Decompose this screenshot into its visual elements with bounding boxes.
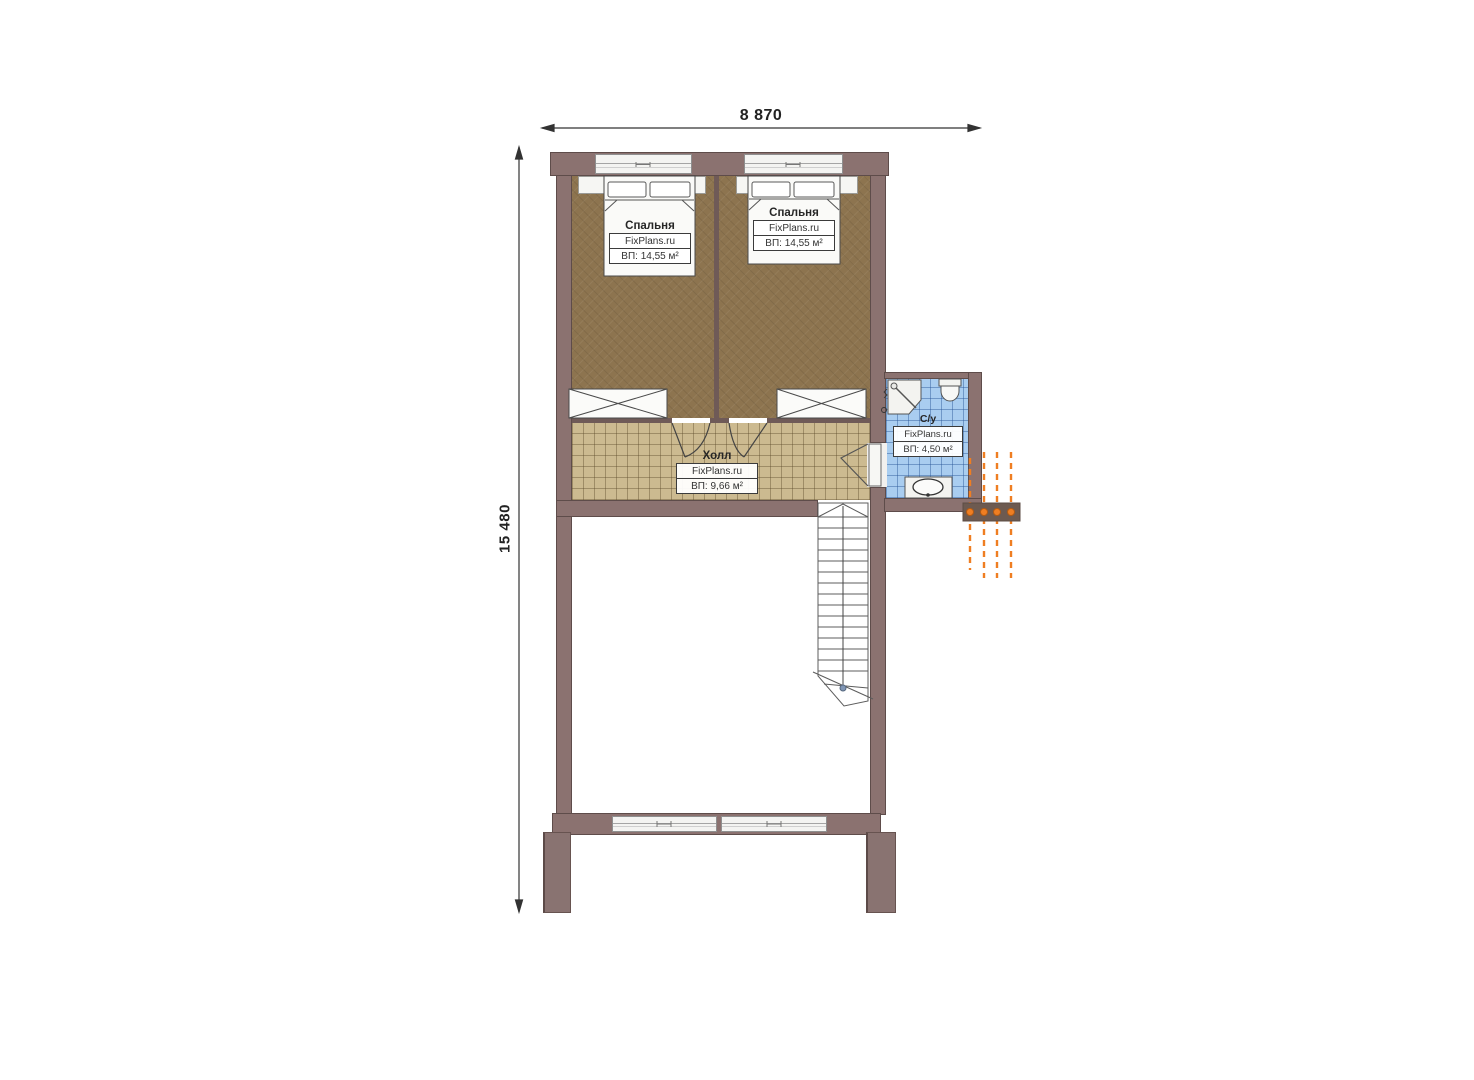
window-bottom-right — [721, 816, 827, 832]
wall-right-lower — [870, 487, 886, 815]
hall-name: Холл — [667, 450, 767, 462]
wall-hall-c — [767, 418, 870, 423]
stairs — [813, 503, 873, 706]
bathroom-area: ВП: 4,50 м² — [893, 441, 963, 457]
bedroom-right-name: Спальня — [748, 207, 840, 219]
bathroom-wall-right — [968, 372, 982, 512]
porch-column-left — [543, 832, 571, 913]
wall-hall-b — [710, 418, 729, 423]
bedroom-left-name: Спальня — [604, 220, 696, 232]
bedroom-right-watermark: FixPlans.ru — [753, 220, 835, 236]
window-top-right — [744, 154, 843, 174]
wall-right-upper — [870, 175, 886, 443]
bathroom-wall-bottom — [884, 498, 982, 512]
bedroom-right-area: ВП: 14,55 м² — [753, 235, 835, 251]
porch-column-right — [866, 832, 896, 913]
bedroom-left-area: ВП: 14,55 м² — [609, 248, 691, 264]
height-dimension-label: 15 480 — [497, 490, 514, 568]
hall-area: ВП: 9,66 м² — [676, 478, 758, 494]
hall-label: Холл FixPlans.ru ВП: 9,66 м² — [667, 450, 767, 494]
wall-hall-a — [572, 418, 672, 423]
bathroom-watermark: FixPlans.ru — [893, 426, 963, 442]
hall-watermark: FixPlans.ru — [676, 463, 758, 479]
bedroom-left-sill — [578, 176, 706, 194]
floor-plan-canvas: 8 870 15 480 Спальня FixPlans.ru ВП: 14,… — [0, 0, 1474, 1080]
bedroom-left-watermark: FixPlans.ru — [609, 233, 691, 249]
dimension-line-width — [542, 125, 980, 132]
partition-bedrooms — [714, 176, 719, 418]
bathroom-label: С/у FixPlans.ru ВП: 4,50 м² — [890, 413, 966, 457]
bedroom-left-floor — [572, 176, 714, 418]
bathroom-name: С/у — [890, 413, 966, 425]
dimension-line-height — [516, 147, 523, 912]
window-bottom-left — [612, 816, 717, 832]
window-top-left — [595, 154, 692, 174]
bedroom-right-sill — [736, 176, 858, 194]
width-dimension-label: 8 870 — [542, 107, 980, 125]
wall-hall-bottom — [556, 500, 818, 517]
bedroom-right-label: Спальня FixPlans.ru ВП: 14,55 м² — [748, 207, 840, 251]
bedroom-left-label: Спальня FixPlans.ru ВП: 14,55 м² — [604, 220, 696, 264]
wall-left — [556, 175, 572, 815]
